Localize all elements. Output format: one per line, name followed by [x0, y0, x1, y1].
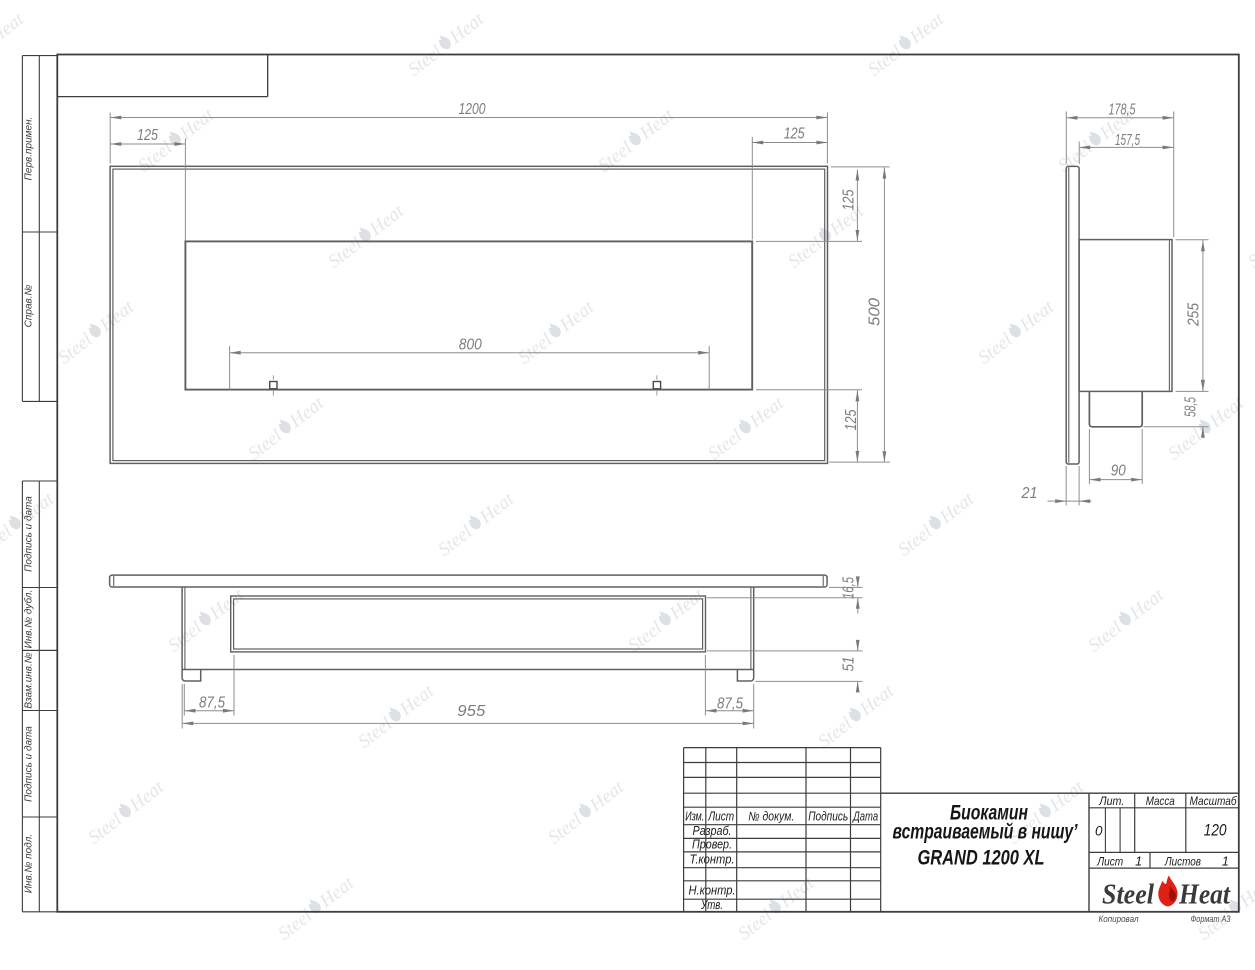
svg-text:178,5: 178,5	[1109, 102, 1136, 119]
svg-text:Т.контр.: Т.контр.	[690, 852, 735, 866]
svg-text:Н.контр.: Н.контр.	[689, 884, 736, 898]
svg-text:Лист: Лист	[1096, 854, 1123, 868]
svg-text:125: 125	[784, 126, 805, 143]
svg-text:Масштаб: Масштаб	[1190, 794, 1238, 808]
svg-text:16,5: 16,5	[841, 577, 858, 599]
svg-text:встраиваемый в нишу’: встраиваемый в нишу’	[893, 821, 1079, 844]
svg-text:Перв.примен.: Перв.примен.	[24, 117, 35, 181]
svg-text:58,5: 58,5	[1183, 397, 1200, 417]
svg-text:87,5: 87,5	[717, 696, 743, 713]
svg-text:Справ.№: Справ.№	[24, 284, 35, 327]
svg-text:№ докум.: № докум.	[748, 810, 794, 824]
svg-text:Лист: Лист	[707, 810, 734, 824]
svg-text:Дата: Дата	[852, 810, 879, 824]
svg-text:Подпись: Подпись	[808, 810, 848, 824]
svg-text:125: 125	[137, 127, 158, 144]
svg-text:157,5: 157,5	[1115, 132, 1140, 149]
svg-text:Лит.: Лит.	[1098, 794, 1124, 808]
svg-text:Инв.№ подл.: Инв.№ подл.	[24, 834, 35, 893]
svg-text:Heat: Heat	[1178, 879, 1231, 911]
svg-text:0: 0	[1095, 824, 1103, 839]
svg-text:800: 800	[459, 337, 482, 354]
svg-text:51: 51	[841, 657, 858, 672]
svg-text:Разраб.: Разраб.	[693, 824, 732, 838]
svg-text:Листов: Листов	[1164, 854, 1201, 868]
svg-text:255: 255	[1186, 303, 1203, 327]
svg-text:1: 1	[1135, 854, 1142, 868]
svg-text:120: 120	[1204, 821, 1227, 840]
svg-text:125: 125	[843, 409, 860, 430]
svg-text:955: 955	[457, 703, 485, 720]
svg-text:Взам.инв.№: Взам.инв.№	[24, 652, 35, 708]
svg-text:Изм.: Изм.	[685, 810, 704, 824]
svg-text:Формат А3: Формат А3	[1191, 914, 1232, 925]
svg-text:21: 21	[1021, 485, 1038, 502]
svg-text:500: 500	[867, 298, 884, 326]
svg-text:Инв.№ дубл.: Инв.№ дубл.	[23, 590, 35, 649]
svg-text:Подпись и дата: Подпись и дата	[24, 496, 35, 572]
svg-text:Провер.: Провер.	[692, 838, 732, 852]
svg-text:1200: 1200	[459, 101, 486, 118]
svg-text:90: 90	[1111, 463, 1126, 480]
svg-text:GRAND 1200 XL: GRAND 1200 XL	[918, 846, 1045, 869]
svg-text:Подпись и дата: Подпись и дата	[24, 726, 35, 802]
svg-text:1: 1	[1222, 854, 1229, 868]
svg-text:Масса: Масса	[1146, 794, 1175, 808]
svg-text:Копировал: Копировал	[1099, 914, 1140, 925]
svg-text:87,5: 87,5	[199, 695, 225, 712]
svg-text:125: 125	[841, 189, 858, 210]
svg-text:Утв.: Утв.	[700, 898, 723, 912]
svg-text:Steel: Steel	[1102, 879, 1155, 911]
